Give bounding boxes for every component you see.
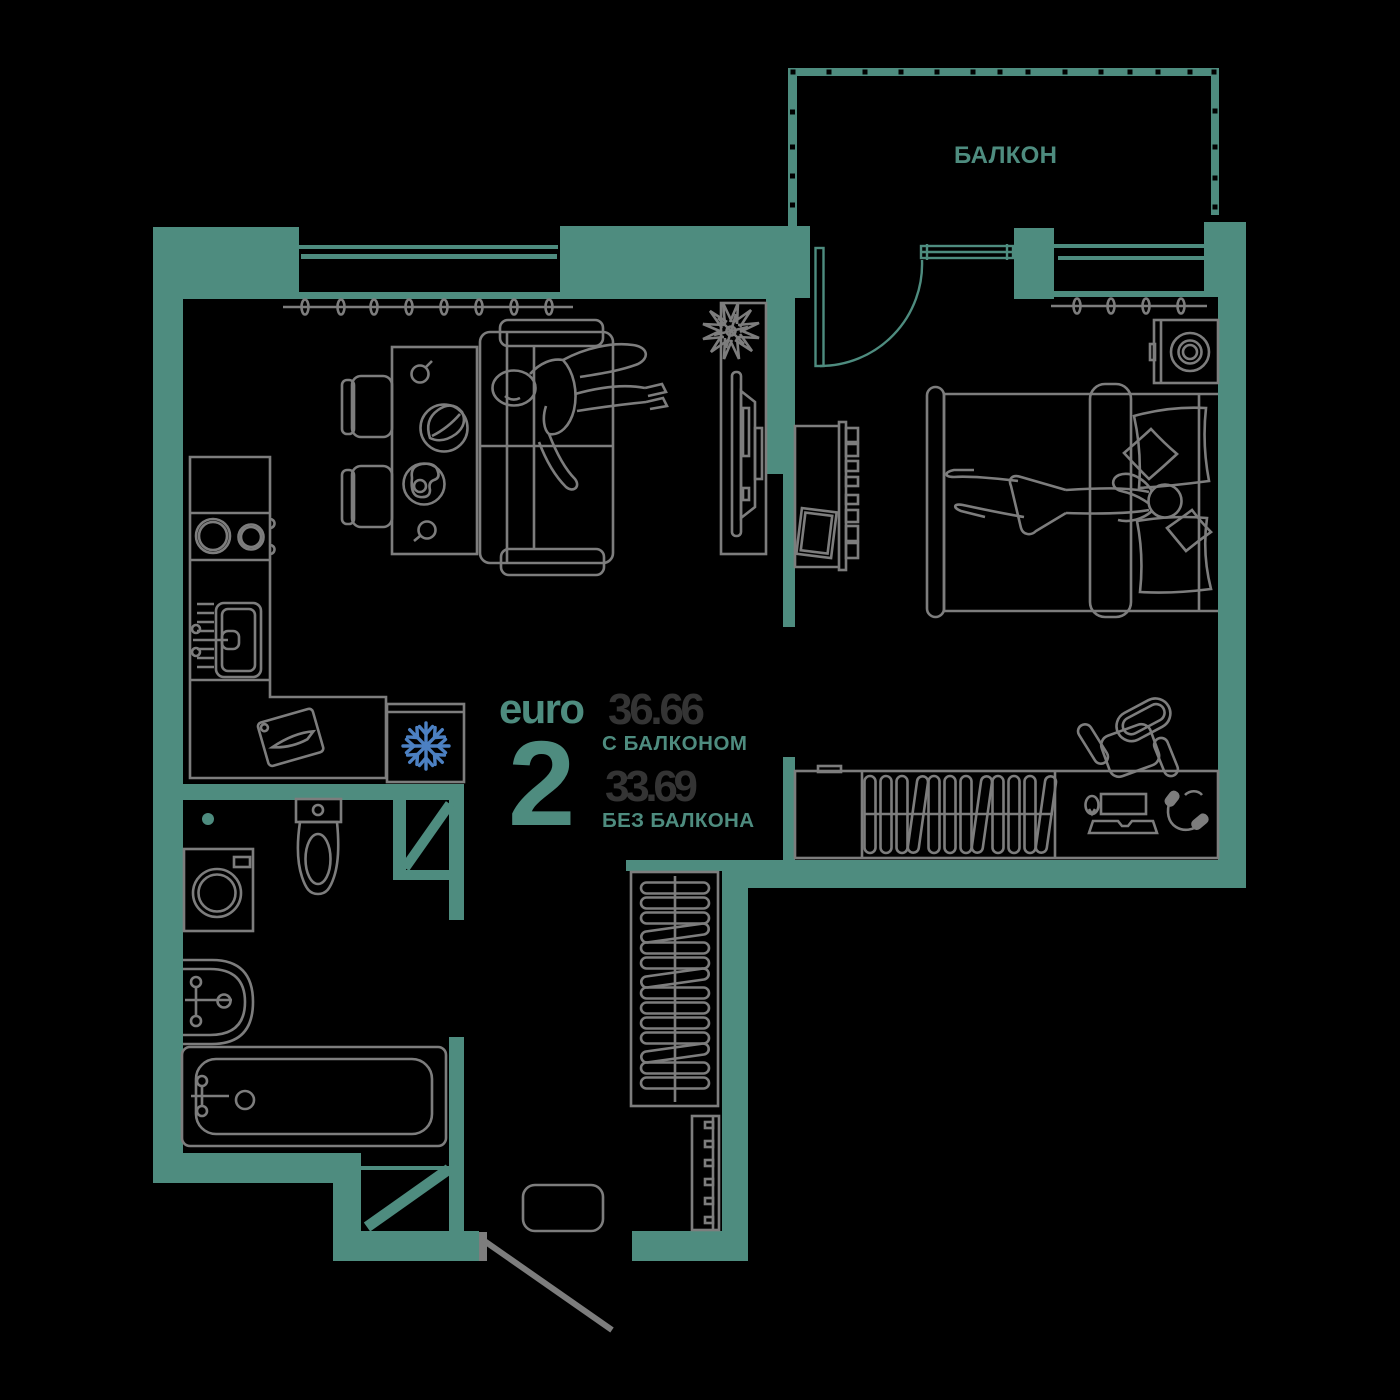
svg-text:БАЛКОН: БАЛКОН (954, 142, 1060, 169)
svg-text:С БАЛКОНОМ: С БАЛКОНОМ (602, 732, 747, 755)
svg-text:2: 2 (508, 715, 575, 851)
svg-text:33.69: 33.69 (605, 762, 698, 811)
svg-text:БЕЗ БАЛКОНА: БЕЗ БАЛКОНА (602, 809, 754, 832)
svg-text:36.66: 36.66 (608, 685, 705, 734)
